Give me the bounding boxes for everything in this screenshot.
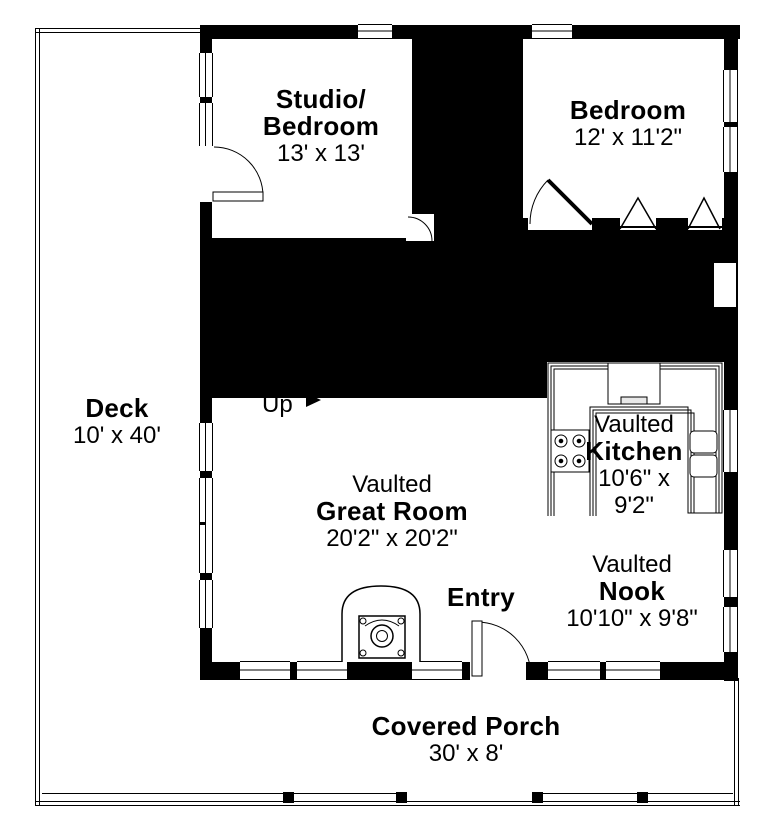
- stair-hall-mass-main: [200, 238, 547, 398]
- window: [548, 661, 600, 680]
- window: [358, 24, 392, 39]
- room-label-studio: Studio/ Bedroom 13' x 13': [263, 86, 379, 167]
- porch-railing: [294, 793, 396, 802]
- room-qualifier: Vaulted: [316, 471, 468, 498]
- range-oven-icon: [608, 363, 660, 404]
- porch-post: [396, 792, 407, 803]
- window: [723, 70, 738, 122]
- room-label-deck: Deck 10' x 40': [73, 395, 161, 449]
- room-name: Nook: [566, 578, 698, 605]
- closet-opening: [620, 217, 656, 230]
- stairs-up-label: Up: [262, 391, 293, 419]
- room-dims: 13' x 13': [263, 140, 379, 167]
- window: [606, 661, 660, 680]
- door-opening-studio-hall: [406, 214, 434, 241]
- stair-hall-mass-column: [412, 25, 523, 240]
- window: [723, 410, 738, 472]
- room-label-bedroom: Bedroom 12' x 11'2": [570, 97, 686, 151]
- porch-post: [532, 792, 543, 803]
- window: [412, 661, 462, 680]
- room-name: Studio/: [263, 86, 379, 113]
- room-dims: 10'10" x 9'8": [566, 605, 698, 632]
- closet-opening: [688, 217, 722, 230]
- room-name: Covered Porch: [372, 713, 561, 740]
- room-dims: 12' x 11'2": [570, 124, 686, 151]
- double-sink-icon: [690, 431, 717, 477]
- room-qualifier: Vaulted: [585, 411, 682, 438]
- porch-right-edge: [734, 678, 739, 806]
- porch-railing: [42, 793, 283, 802]
- closet-sill: [620, 226, 656, 228]
- window: [199, 423, 213, 471]
- window: [532, 24, 572, 39]
- window: [199, 103, 213, 148]
- room-dims: 10' x 40': [73, 422, 161, 449]
- door-swing-studio: [213, 147, 263, 201]
- window: [199, 53, 213, 97]
- closet-sill: [688, 226, 722, 228]
- room-name: Deck: [73, 395, 161, 422]
- window: [723, 127, 738, 172]
- porch-post: [637, 792, 648, 803]
- room-name: Great Room: [316, 498, 468, 525]
- window: [240, 661, 290, 680]
- room-dims: 30' x 8': [372, 740, 561, 767]
- door-opening-studio-deck: [197, 146, 214, 202]
- window: [723, 607, 738, 652]
- deck-left-edge: [35, 28, 40, 806]
- room-dims: 10'6" x: [585, 465, 682, 492]
- deck-top-edge: [35, 28, 202, 33]
- room-name: Kitchen: [585, 438, 682, 465]
- porch-railing: [543, 793, 637, 802]
- porch-railing: [648, 793, 733, 802]
- room-name: Bedroom: [263, 113, 379, 140]
- window: [723, 550, 738, 597]
- room-label-great-room: Vaulted Great Room 20'2" x 20'2": [316, 471, 468, 552]
- porch-post: [283, 792, 294, 803]
- room-dims: 9'2": [585, 492, 682, 519]
- room-name: Bedroom: [570, 97, 686, 124]
- door-opening-bedroom: [528, 217, 592, 230]
- door-opening-entry: [470, 660, 526, 682]
- stair-hall-mass-right: [523, 228, 724, 362]
- cooktop-icon: [551, 430, 589, 472]
- window: [297, 661, 347, 680]
- wood-stove-icon: [342, 586, 420, 662]
- window: [199, 580, 213, 628]
- room-label-nook: Vaulted Nook 10'10" x 9'8": [566, 551, 698, 632]
- window-mullion: [199, 522, 206, 525]
- window: [199, 478, 213, 573]
- room-dims: 20'2" x 20'2": [316, 525, 468, 552]
- room-qualifier: Vaulted: [566, 551, 698, 578]
- room-label-kitchen: Vaulted Kitchen 10'6" x 9'2": [585, 411, 682, 519]
- floor-plan: Studio/ Bedroom 13' x 13' Bedroom 12' x …: [0, 0, 763, 840]
- entry-label: Entry: [447, 584, 515, 611]
- room-label-covered-porch: Covered Porch 30' x 8': [372, 713, 561, 767]
- wall-recess: [713, 263, 736, 307]
